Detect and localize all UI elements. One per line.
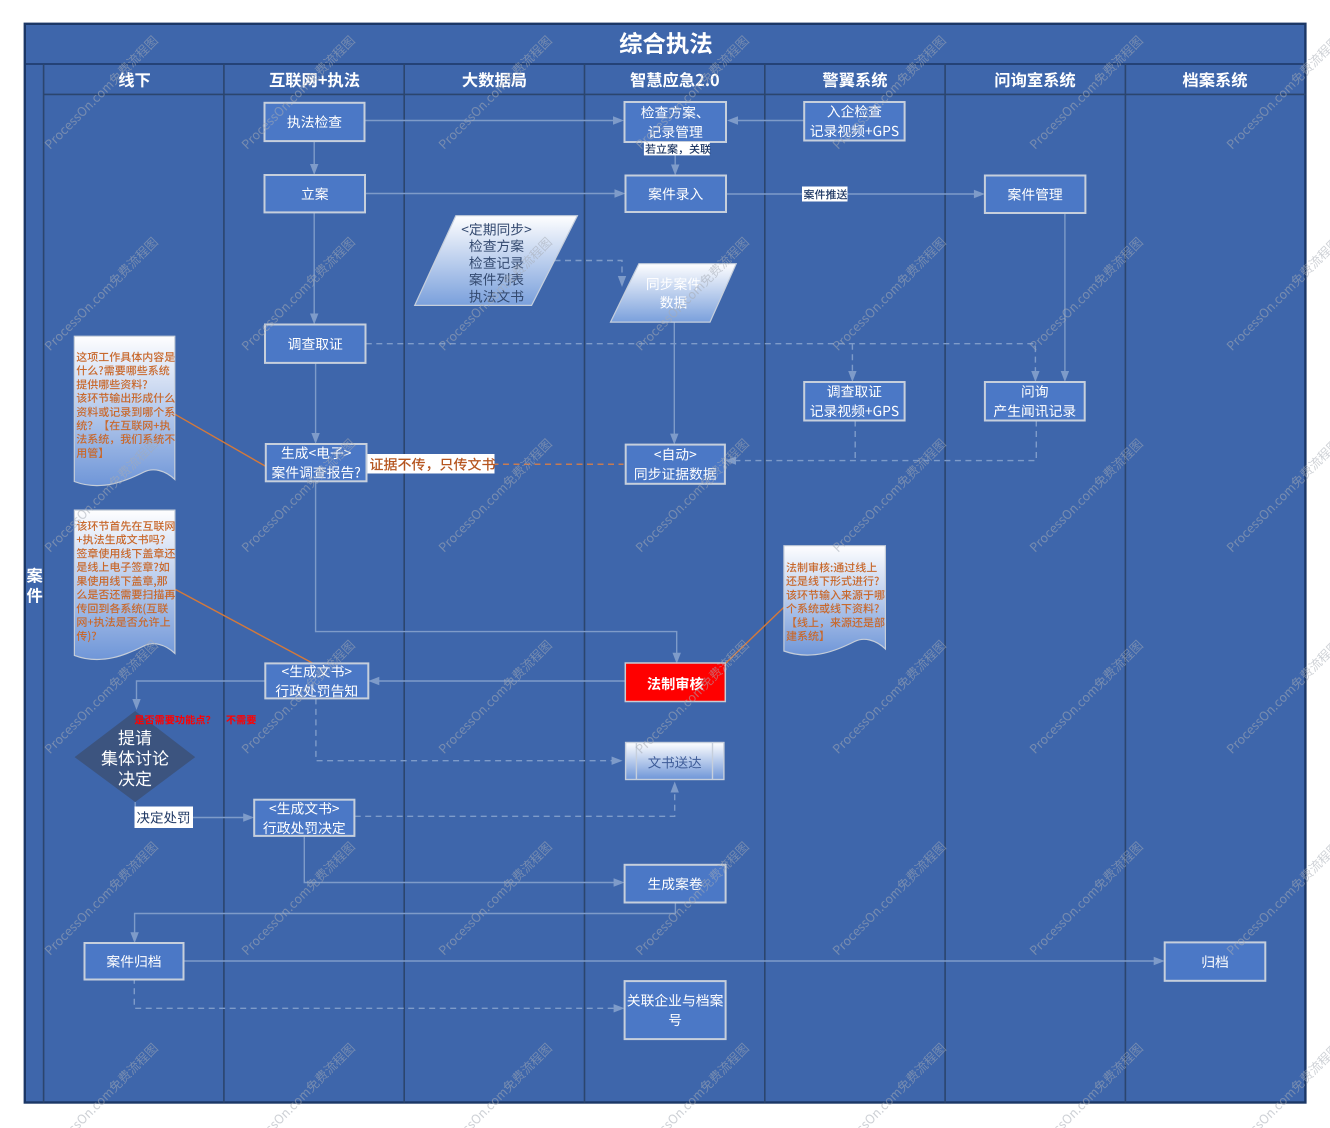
svg-text:建系统】: 建系统】 [786, 628, 830, 644]
svg-text:综合执法: 综合执法 [619, 25, 713, 59]
svg-text:件: 件 [27, 582, 43, 606]
svg-text:立案: 立案 [301, 183, 329, 203]
svg-text:问询室系统: 问询室系统 [994, 67, 1075, 91]
svg-text:<生成文书>: <生成文书> [269, 797, 340, 817]
svg-text:调查取证: 调查取证 [827, 381, 882, 401]
svg-text:用管】: 用管】 [76, 445, 109, 461]
svg-text:传)?: 传)? [76, 628, 96, 644]
svg-text:问询: 问询 [1021, 381, 1049, 401]
svg-text:案件推送: 案件推送 [804, 187, 848, 203]
svg-text:文书送达: 文书送达 [648, 752, 702, 772]
svg-text:调查取证: 调查取证 [288, 333, 343, 353]
svg-text:决定处罚: 决定处罚 [137, 807, 191, 827]
svg-text:若立案，关联: 若立案，关联 [645, 141, 711, 157]
svg-text:档案系统: 档案系统 [1182, 67, 1247, 91]
svg-text:案件录入: 案件录入 [648, 183, 703, 203]
svg-text:案件管理: 案件管理 [1008, 183, 1063, 203]
svg-text:警翼系统: 警翼系统 [822, 67, 887, 91]
svg-text:关联企业与档案: 关联企业与档案 [627, 990, 724, 1010]
svg-text:行政处罚决定: 行政处罚决定 [263, 817, 346, 837]
svg-text:记录视频+GPS: 记录视频+GPS [810, 400, 899, 420]
svg-text:执法检查: 执法检查 [287, 111, 342, 131]
svg-text:案件归档: 案件归档 [106, 951, 161, 971]
svg-text:归档: 归档 [1201, 951, 1229, 971]
svg-text:产生闻讯记录: 产生闻讯记录 [993, 400, 1076, 420]
svg-text:决定: 决定 [118, 765, 152, 790]
svg-text:证据不传，只传文书: 证据不传，只传文书 [370, 454, 496, 474]
svg-text:是否需要功能点？ 不需要: 是否需要功能点？ 不需要 [134, 712, 256, 727]
svg-text:号: 号 [668, 1009, 682, 1029]
svg-text:<自动>: <自动> [654, 444, 697, 464]
